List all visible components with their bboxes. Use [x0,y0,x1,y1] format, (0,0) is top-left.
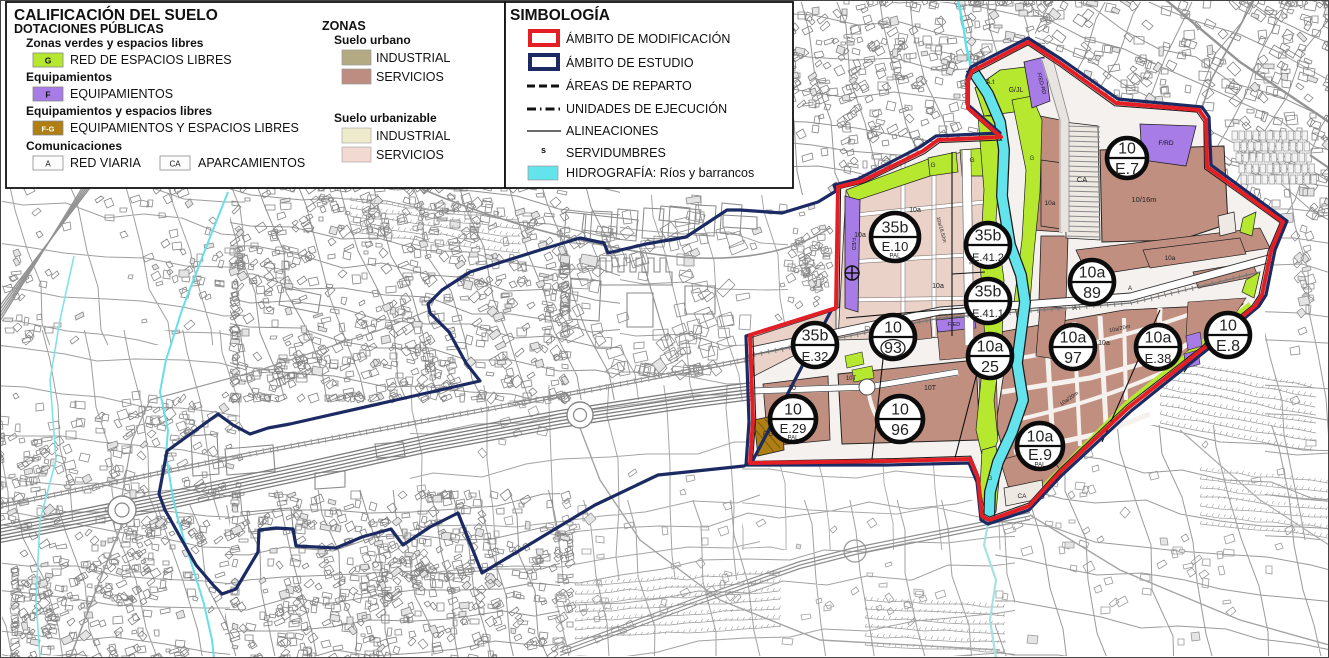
svg-text:INDUSTRIAL: INDUSTRIAL [376,51,450,65]
svg-text:ALINEACIONES: ALINEACIONES [566,124,658,138]
svg-text:EQUIPAMIENTOS Y ESPACIOS LIBRE: EQUIPAMIENTOS Y ESPACIOS LIBRES [70,121,299,135]
svg-text:E.41.1: E.41.1 [972,308,1004,320]
svg-text:G: G [988,476,993,482]
svg-text:F/RD: F/RD [1158,140,1173,147]
svg-text:ÁMBITO DE MODIFICACIÓN: ÁMBITO DE MODIFICACIÓN [566,31,730,46]
svg-text:CA: CA [1077,175,1087,184]
svg-text:SERVIDUMBRES: SERVIDUMBRES [566,146,666,160]
svg-text:UNIDADES DE EJECUCIÓN: UNIDADES DE EJECUCIÓN [566,101,727,116]
svg-text:G/JL: G/JL [1009,87,1024,94]
svg-text:ÁREAS DE REPARTO: ÁREAS DE REPARTO [566,78,692,93]
svg-text:E.38: E.38 [1145,351,1172,366]
svg-text:10T: 10T [846,376,857,382]
svg-text:10a: 10a [1079,265,1106,282]
svg-text:s: s [541,145,546,155]
svg-text:25: 25 [981,359,999,376]
svg-text:10/16m: 10/16m [1131,195,1156,204]
svg-text:10a: 10a [1060,330,1087,347]
svg-text:A: A [1128,286,1132,292]
svg-text:PAL: PAL [788,436,800,442]
svg-text:A: A [1073,306,1077,312]
svg-text:DOTACIONES PÚBLICAS: DOTACIONES PÚBLICAS [14,21,164,36]
svg-text:SIMBOLOGÍA: SIMBOLOGÍA [510,7,610,24]
svg-text:SERVICIOS: SERVICIOS [376,70,444,84]
svg-text:CA: CA [1017,493,1027,500]
svg-text:10a: 10a [1027,429,1054,446]
svg-text:10a: 10a [1045,200,1056,207]
svg-text:G: G [45,56,52,66]
svg-text:10a: 10a [1098,340,1110,347]
svg-text:A: A [45,160,51,169]
svg-text:HIDROGRAFÍA: Ríos y barrancos: HIDROGRAFÍA: Ríos y barrancos [566,165,754,180]
svg-text:E.41.2: E.41.2 [972,252,1004,264]
svg-text:Comunicaciones: Comunicaciones [26,139,122,153]
svg-text:97: 97 [1064,350,1082,367]
svg-text:RED VIARIA: RED VIARIA [70,156,142,170]
svg-text:10a: 10a [932,283,944,290]
svg-text:35b: 35b [882,220,909,237]
svg-text:A.t: A.t [986,79,995,86]
svg-text:10T: 10T [924,385,937,392]
svg-text:35b: 35b [975,284,1002,301]
svg-text:Zonas verdes y espacios libres: Zonas verdes y espacios libres [26,36,204,50]
svg-text:10a: 10a [977,339,1004,356]
svg-text:CA: CA [169,160,181,169]
svg-text:10: 10 [1219,318,1237,335]
svg-text:ÁMBITO DE ESTUDIO: ÁMBITO DE ESTUDIO [566,55,694,70]
svg-text:10: 10 [1118,141,1136,158]
svg-text:E.7: E.7 [1115,161,1139,178]
svg-text:Suelo urbano: Suelo urbano [334,33,411,47]
svg-text:35b: 35b [975,228,1002,245]
svg-text:G: G [969,157,974,164]
svg-text:10: 10 [891,402,909,419]
svg-text:93: 93 [884,340,902,357]
svg-text:Equipamientos y espacios libre: Equipamientos y espacios libres [26,104,212,118]
svg-text:E.8: E.8 [1216,338,1240,355]
svg-text:EQUIPAMIENTOS: EQUIPAMIENTOS [70,87,173,101]
svg-text:Suelo urbanizable: Suelo urbanizable [334,111,437,125]
svg-text:G: G [1030,156,1035,162]
svg-text:APARCAMIENTOS: APARCAMIENTOS [198,156,305,170]
svg-text:F: F [45,90,50,100]
svg-text:10a: 10a [909,207,921,214]
svg-text:E.32: E.32 [802,349,829,364]
svg-text:PAL: PAL [890,254,902,260]
svg-text:INDUSTRIAL: INDUSTRIAL [376,129,450,143]
svg-text:F/ED: F/ED [948,322,961,328]
svg-text:10a: 10a [1145,330,1172,347]
svg-text:10: 10 [884,320,902,337]
svg-text:35b: 35b [802,328,829,345]
svg-text:E.29: E.29 [780,421,807,436]
svg-text:PAL: PAL [1035,463,1047,469]
svg-text:RED DE ESPACIOS LIBRES: RED DE ESPACIOS LIBRES [70,53,232,67]
svg-text:89: 89 [1083,285,1101,302]
svg-text:SERVICIOS: SERVICIOS [376,148,444,162]
svg-text:F/ED: F/ED [850,238,856,251]
svg-text:E.9: E.9 [1028,447,1052,464]
svg-text:F-G: F-G [42,125,55,134]
svg-text:E.10: E.10 [882,239,909,254]
svg-text:G: G [930,162,935,169]
svg-text:96: 96 [891,422,909,439]
svg-text:10: 10 [784,402,802,419]
svg-text:Equipamientos: Equipamientos [26,70,112,84]
svg-text:10a: 10a [1165,255,1176,262]
svg-text:ZONAS: ZONAS [322,19,366,33]
